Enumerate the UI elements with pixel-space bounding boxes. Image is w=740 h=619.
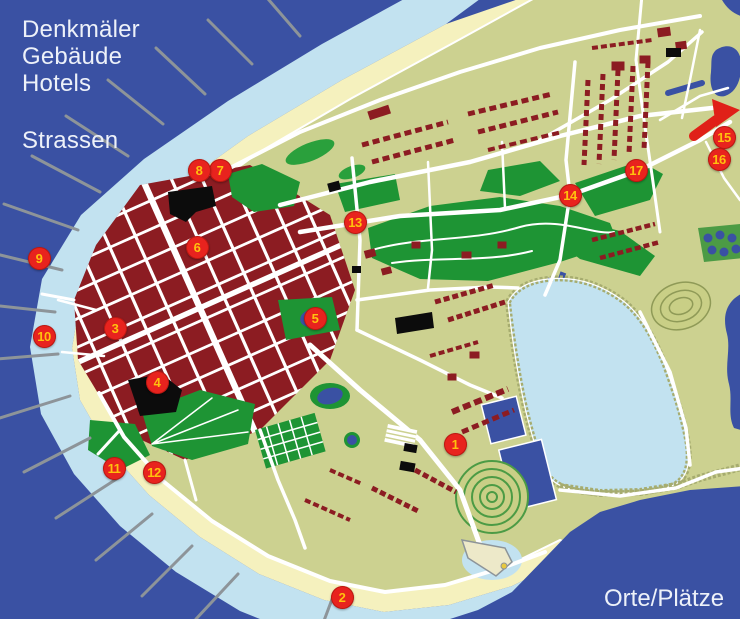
map-marker-10[interactable]: 10 bbox=[33, 325, 56, 348]
legend: Denkmäler Gebäude Hotels Strassen bbox=[22, 16, 140, 154]
map-marker-14[interactable]: 14 bbox=[559, 184, 582, 207]
map-marker-8[interactable]: 8 bbox=[188, 159, 211, 182]
map-marker-15[interactable]: 15 bbox=[713, 126, 736, 149]
map-marker-5[interactable]: 5 bbox=[304, 307, 327, 330]
map-marker-6[interactable]: 6 bbox=[186, 236, 209, 259]
map-marker-16[interactable]: 16 bbox=[708, 148, 731, 171]
legend-buildings-label: Gebäude bbox=[22, 43, 140, 70]
map-marker-7[interactable]: 7 bbox=[209, 159, 232, 182]
map-marker-1[interactable]: 1 bbox=[444, 433, 467, 456]
map-marker-4[interactable]: 4 bbox=[146, 371, 169, 394]
legend-monuments-label: Denkmäler bbox=[22, 16, 140, 43]
legend-hotels-label: Hotels bbox=[22, 70, 140, 97]
map-marker-3[interactable]: 3 bbox=[104, 317, 127, 340]
map-marker-12[interactable]: 12 bbox=[143, 461, 166, 484]
legend-places-label: Orte/Plätze bbox=[604, 585, 724, 613]
map-marker-2[interactable]: 2 bbox=[331, 586, 354, 609]
map-marker-9[interactable]: 9 bbox=[28, 247, 51, 270]
map-marker-13[interactable]: 13 bbox=[344, 211, 367, 234]
map-marker-17[interactable]: 17 bbox=[625, 159, 648, 182]
map-marker-11[interactable]: 11 bbox=[103, 457, 126, 480]
legend-streets-label: Strassen bbox=[22, 127, 140, 154]
city-map: 1234567891011121314151617 Denkmäler Gebä… bbox=[0, 0, 740, 619]
